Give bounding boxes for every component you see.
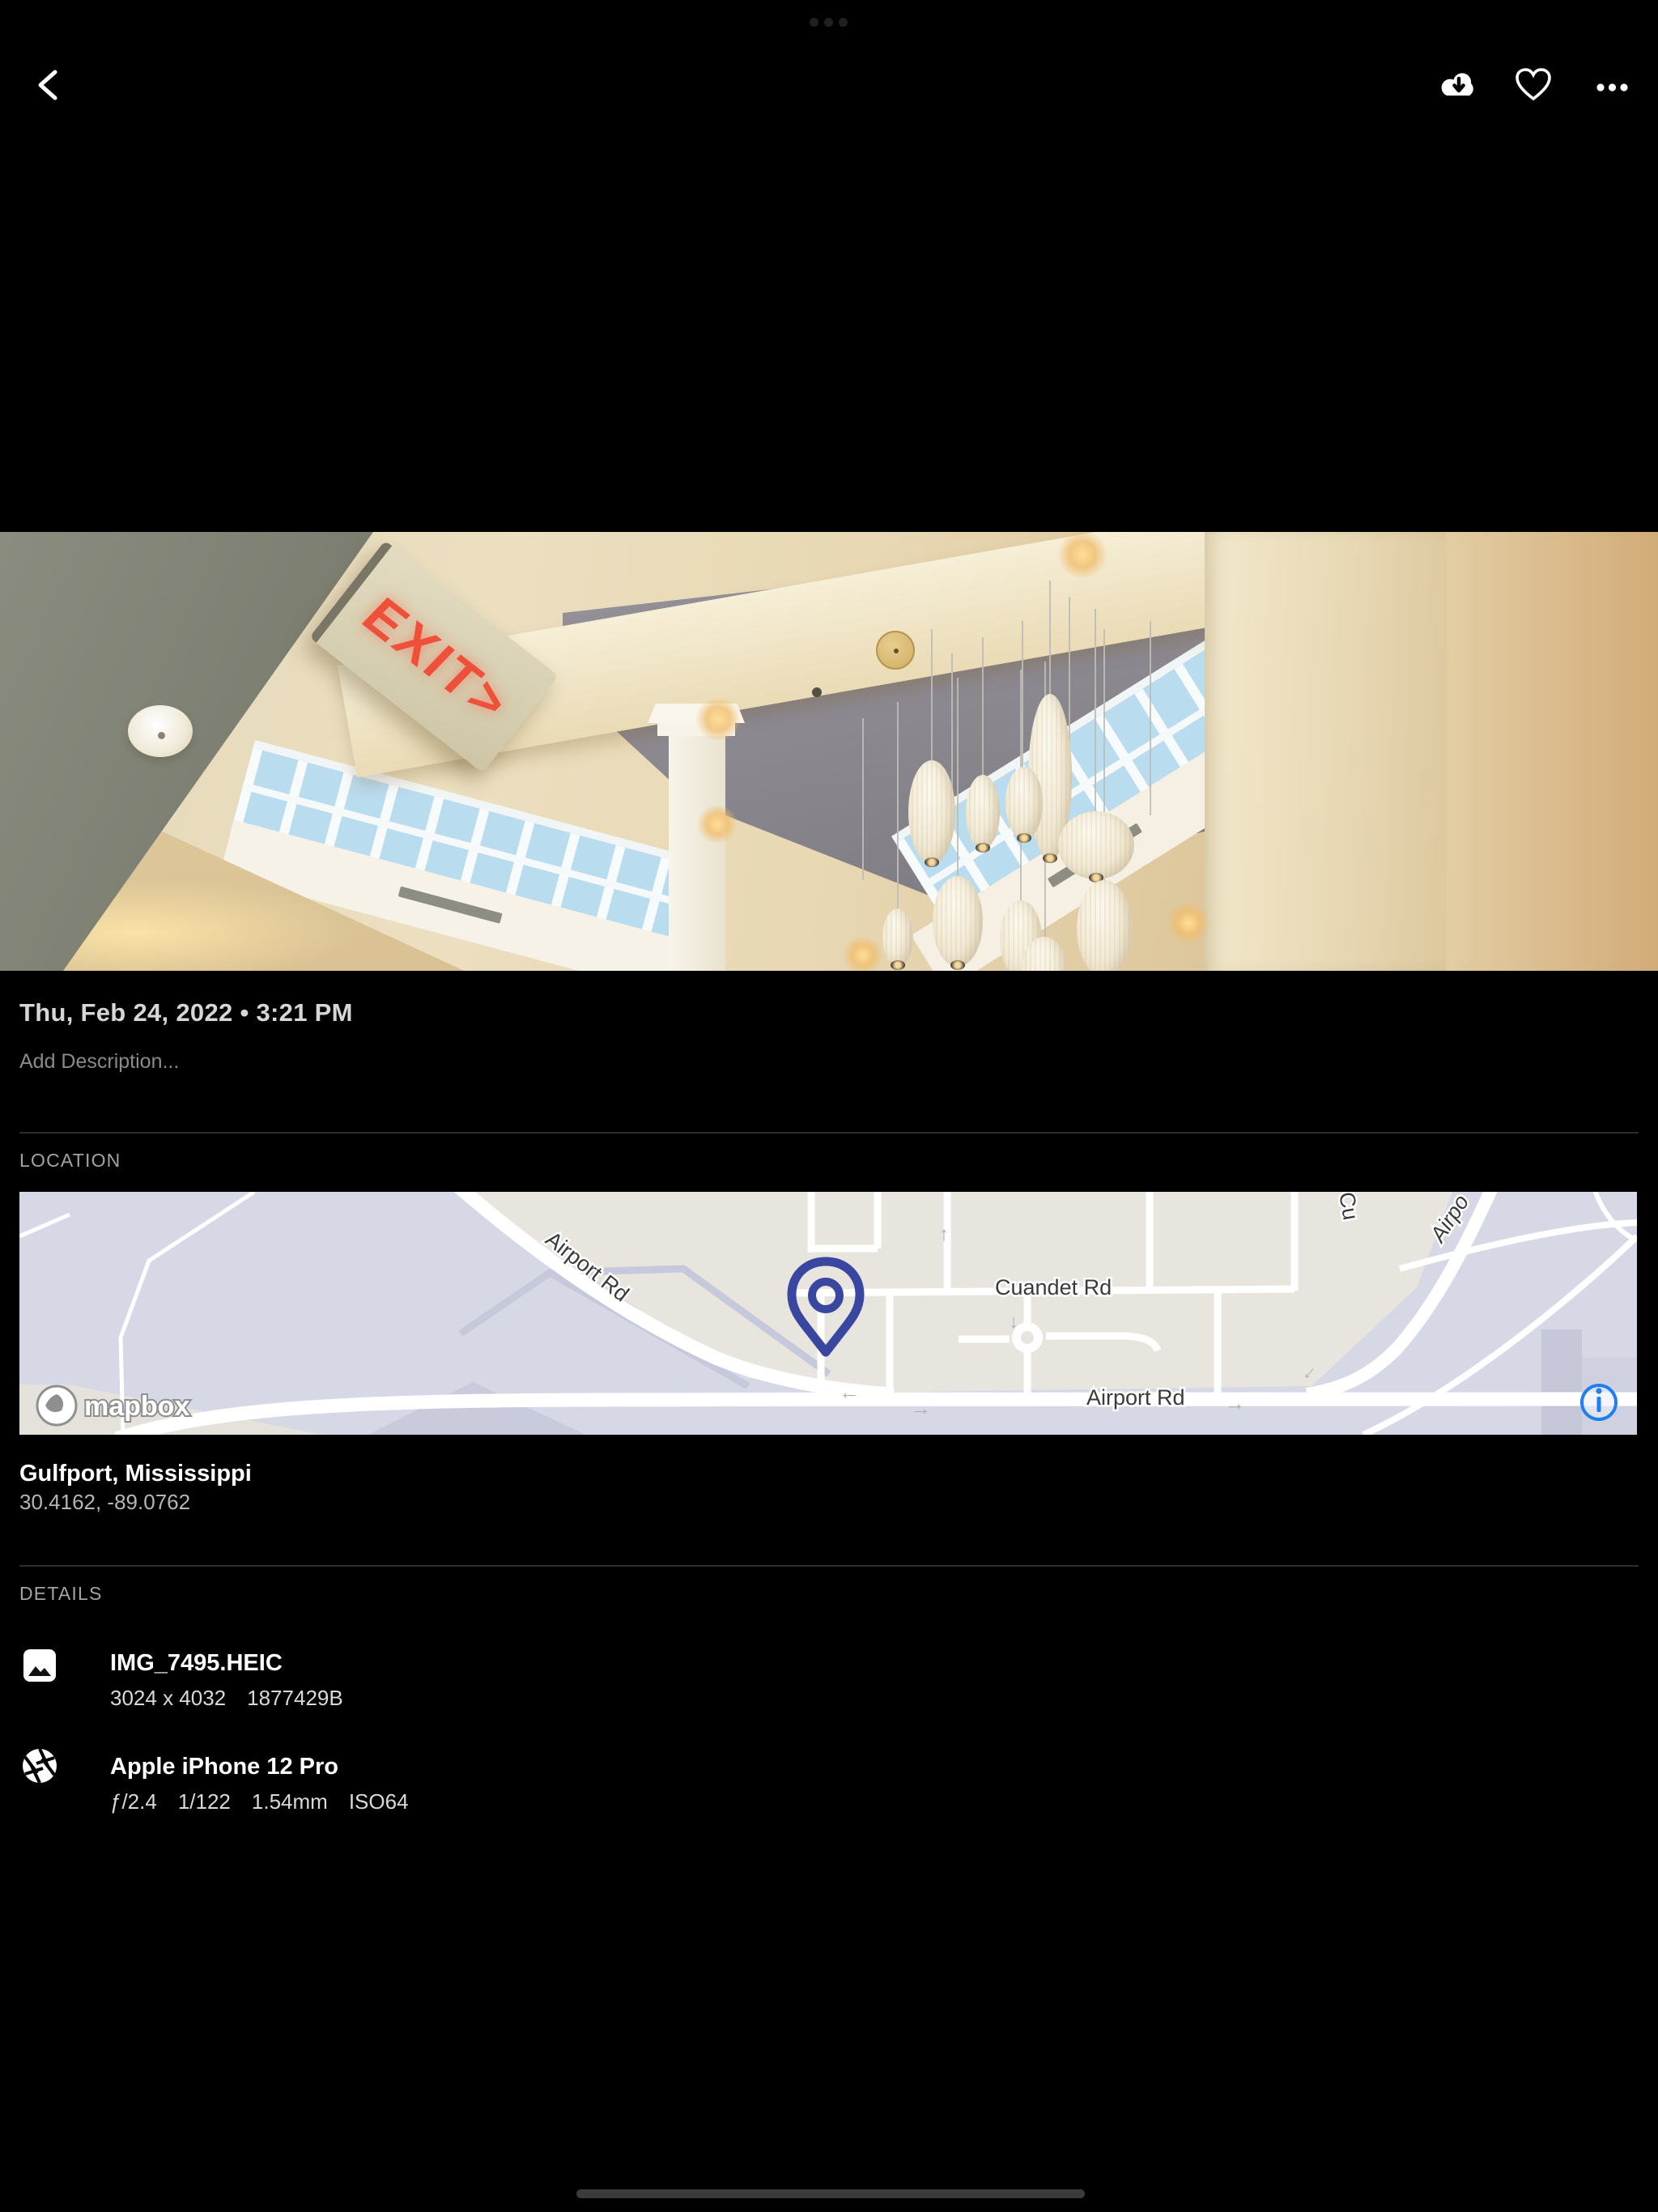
photo-column-shaft	[669, 736, 725, 971]
svg-text:↓: ↓	[1009, 1311, 1018, 1333]
pendant-lamp	[1005, 767, 1043, 840]
svg-text:←: ←	[839, 1380, 860, 1404]
download-button[interactable]	[1438, 69, 1480, 107]
recessed-light	[696, 806, 738, 843]
file-type-icon	[23, 1648, 57, 1687]
description-input[interactable]: Add Description...	[19, 1050, 179, 1074]
recessed-light	[1166, 903, 1211, 943]
divider	[19, 1565, 1639, 1567]
favorite-button[interactable]	[1515, 68, 1552, 106]
mapbox-logo[interactable]: mapbox	[37, 1386, 189, 1425]
divider	[19, 1132, 1639, 1134]
details-section-label: DETAILS	[19, 1583, 103, 1605]
file-size: 1877429B	[247, 1686, 343, 1710]
location-section-label: LOCATION	[19, 1150, 121, 1172]
svg-text:→: →	[910, 1396, 931, 1420]
svg-text:→: →	[1224, 1391, 1245, 1415]
svg-text:mapbox: mapbox	[84, 1391, 189, 1422]
cloud-download-icon	[1438, 69, 1480, 103]
exif-shutter: 1/122	[178, 1789, 231, 1814]
file-meta: 3024 x 40321877429B	[110, 1686, 343, 1711]
chevron-left-icon	[32, 67, 68, 103]
system-handle-dots	[810, 18, 848, 27]
photo-right-pillar	[1205, 532, 1448, 971]
camera-exif: ƒ/2.41/1221.54mmISO64	[110, 1789, 409, 1814]
exif-iso: ISO64	[349, 1789, 409, 1814]
pendant-lamp	[882, 908, 913, 967]
back-button[interactable]	[32, 67, 68, 107]
pendant-lamp	[908, 760, 955, 864]
location-place: Gulfport, Mississippi	[19, 1461, 252, 1487]
map-info-button[interactable]	[1582, 1385, 1616, 1419]
ellipsis-icon	[1596, 83, 1629, 91]
home-indicator[interactable]	[576, 2189, 1085, 2198]
photo-viewer-image[interactable]: EXIT>	[0, 532, 1658, 971]
location-coordinates: 30.4162, -89.0762	[19, 1490, 190, 1515]
map-label-airport-rd-horizontal: Airport Rd	[1086, 1385, 1185, 1410]
camera-aperture-icon	[21, 1747, 58, 1789]
photo-smoke-detector	[128, 705, 193, 757]
recessed-light	[1056, 532, 1108, 577]
pendant-lamp	[933, 876, 983, 967]
photo-right-wall	[1446, 532, 1658, 971]
svg-text:↑: ↑	[939, 1223, 949, 1245]
recessed-light	[695, 698, 742, 740]
location-map[interactable]: ← → → ↑ ↓ ↓ Airport Rd Cuandet Rd Airpor…	[19, 1192, 1637, 1435]
heart-icon	[1515, 68, 1552, 102]
exif-aperture: ƒ/2.4	[110, 1789, 157, 1814]
more-options-button[interactable]	[1596, 81, 1629, 96]
pendant-lamp	[966, 775, 1000, 849]
file-dimensions: 3024 x 4032	[110, 1686, 226, 1710]
photo-datetime: Thu, Feb 24, 2022 • 3:21 PM	[19, 998, 353, 1027]
photo-sprinkler-dot	[812, 687, 822, 697]
camera-name: Apple iPhone 12 Pro	[110, 1754, 338, 1780]
file-name: IMG_7495.HEIC	[110, 1650, 283, 1677]
pendant-lamp	[1058, 811, 1134, 879]
pendant-lamp	[1077, 880, 1132, 971]
exif-focal-length: 1.54mm	[252, 1789, 328, 1814]
map-label-cuandet-rd: Cuandet Rd	[995, 1275, 1112, 1300]
photo-ceiling-disc	[876, 631, 915, 670]
map-label-cu-partial: Cu	[1334, 1192, 1363, 1222]
recessed-light	[842, 937, 884, 971]
